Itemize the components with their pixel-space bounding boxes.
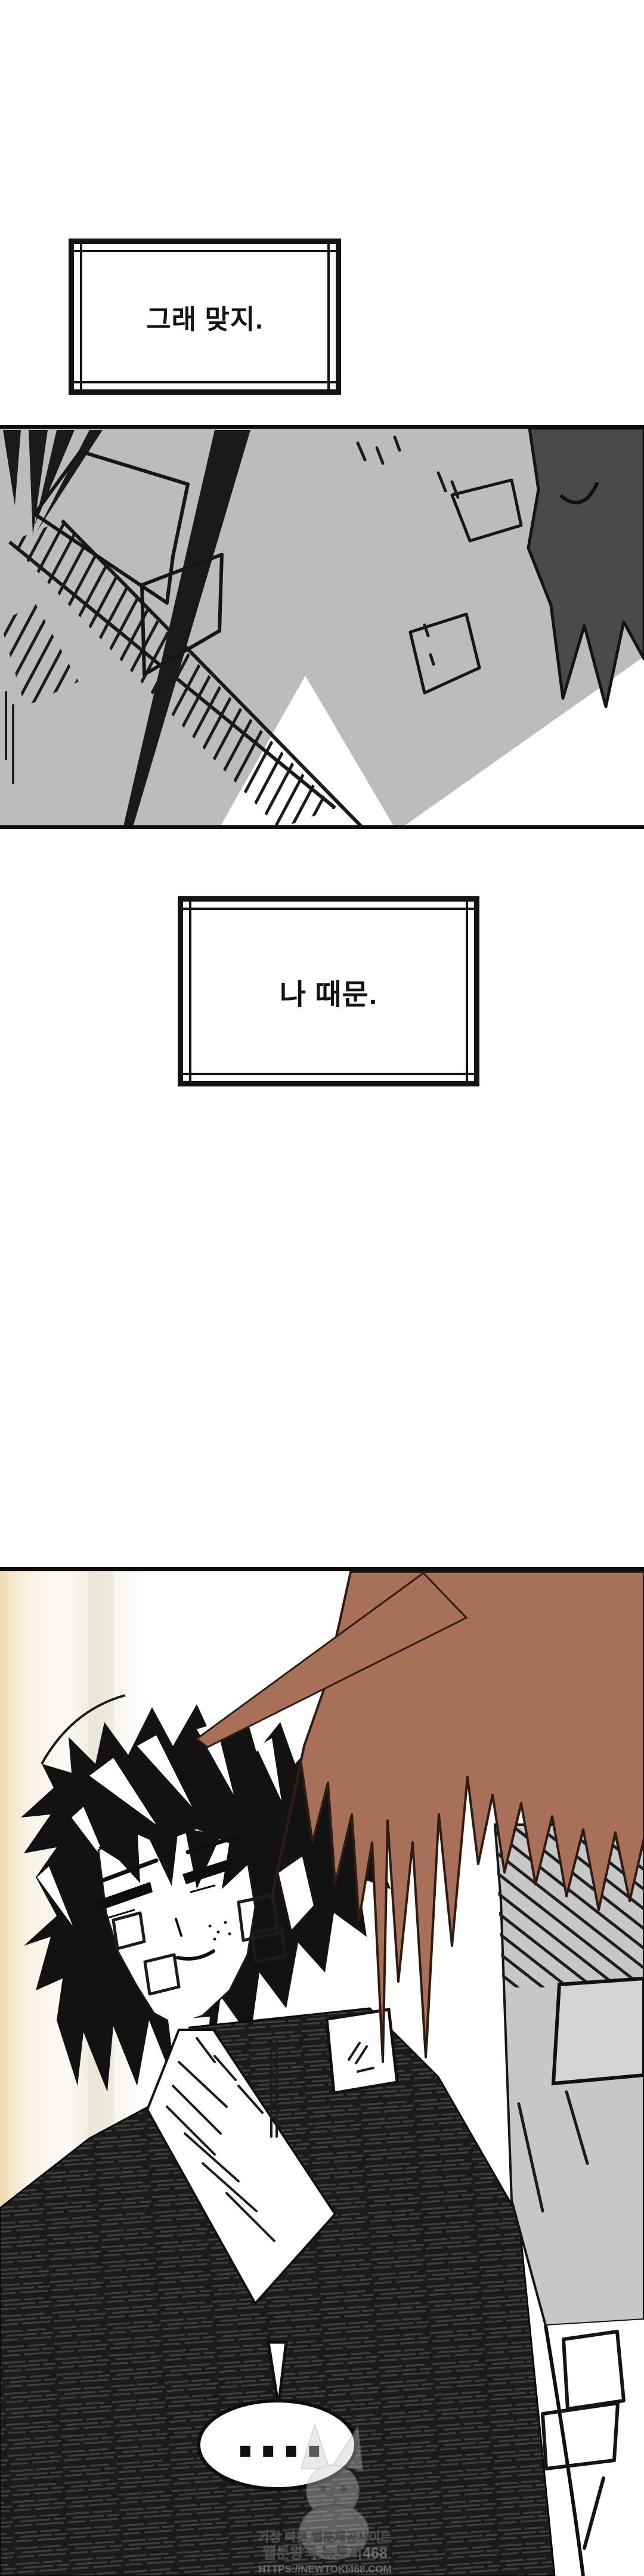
panel-characters: .... 가장 빠른 웹툰제공사이트 웹툰왕국 뉴토끼468 HTTPS://N… xyxy=(0,1567,644,2576)
caption1-inner-line-right xyxy=(327,244,330,389)
caption2-inner-line-right xyxy=(466,902,468,1081)
webtoon-page: 그래 맞지. xyxy=(0,0,644,2576)
watermark-line1: 가장 빠른 웹툰제공사이트 xyxy=(258,2531,392,2544)
panel1-top-border xyxy=(0,425,644,429)
caption2-text: 나 때문. xyxy=(280,971,377,1013)
shoulder-patch xyxy=(553,1979,644,2083)
caption2-inner-line-left xyxy=(189,902,191,1081)
panel1-bottom-border xyxy=(0,825,644,829)
caption1-text: 그래 맞지. xyxy=(146,298,264,336)
chest-patch xyxy=(327,2010,397,2093)
caption1-inner-line-bottom xyxy=(74,381,336,383)
watermark-line3: HTTPS://NEWTOKI468.COM xyxy=(258,2563,392,2575)
caption2-inner-line-top xyxy=(183,908,474,910)
panel2-top-border xyxy=(0,1567,644,1571)
caption2-inner-line-bottom xyxy=(183,1073,474,1075)
caption-box-2: 나 때문. xyxy=(178,896,479,1086)
caption-box-1: 그래 맞지. xyxy=(69,239,341,395)
caption1-inner-line-left xyxy=(80,244,82,389)
panel-closeup-sketch xyxy=(0,425,644,829)
caption1-inner-line-top xyxy=(74,250,336,252)
watermark-line2: 웹툰왕국 뉴토끼468 xyxy=(262,2545,388,2562)
